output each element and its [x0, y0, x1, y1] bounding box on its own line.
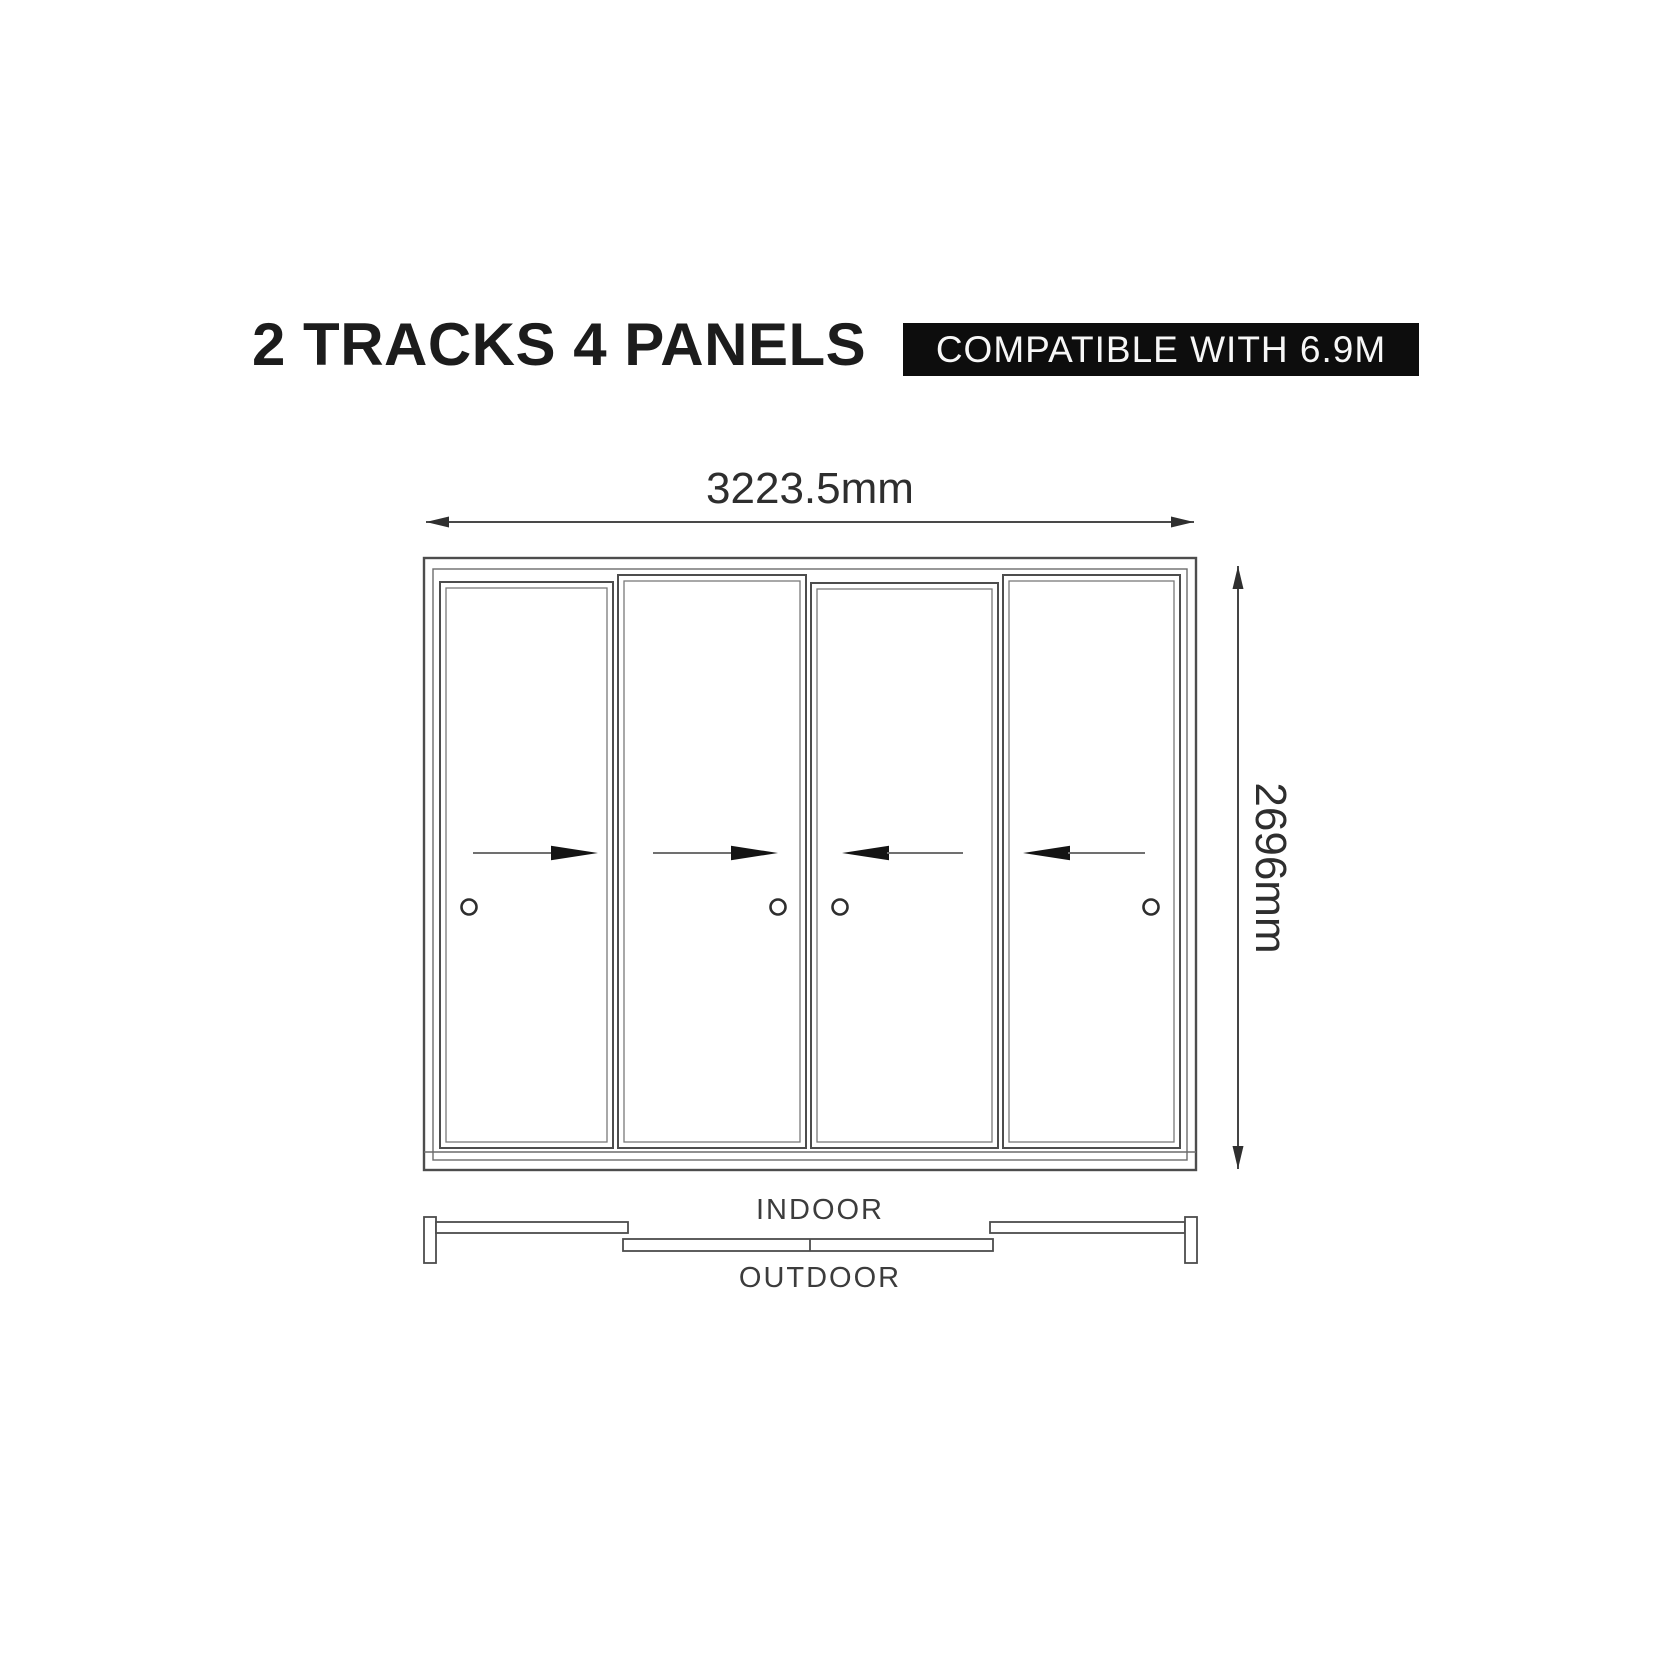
width-dimension-line: [426, 517, 1194, 528]
plan-outdoor-track-center: [623, 1239, 993, 1251]
plan-indoor-track-left: [436, 1222, 628, 1233]
panel-3: [811, 583, 998, 1148]
diagram-page: 2 TRACKS 4 PANELS COMPATIBLE WITH 6.9M 3…: [0, 0, 1676, 1676]
panel-1-handle-icon: [462, 900, 477, 915]
plan-left-jamb: [424, 1217, 436, 1263]
track-plan-view: [424, 1217, 1197, 1263]
door-diagram-linework: [0, 0, 1676, 1676]
height-dim-arrow-bottom-icon: [1233, 1146, 1244, 1169]
width-dim-arrow-right-icon: [1171, 517, 1194, 528]
panel-1: [440, 582, 613, 1148]
width-dim-arrow-left-icon: [426, 517, 449, 528]
height-dim-arrow-top-icon: [1233, 566, 1244, 589]
panel-3-frame: [811, 583, 998, 1148]
panel-2: [618, 575, 806, 1148]
panel-4: [1003, 575, 1180, 1148]
panel-2-handle-icon: [771, 900, 786, 915]
panel-1-frame: [440, 582, 613, 1148]
panel-4-frame: [1003, 575, 1180, 1148]
plan-indoor-track-right: [990, 1222, 1185, 1233]
plan-right-jamb: [1185, 1217, 1197, 1263]
panel-4-handle-icon: [1144, 900, 1159, 915]
panel-2-frame: [618, 575, 806, 1148]
panel-3-handle-icon: [833, 900, 848, 915]
height-dimension-line: [1233, 566, 1244, 1169]
